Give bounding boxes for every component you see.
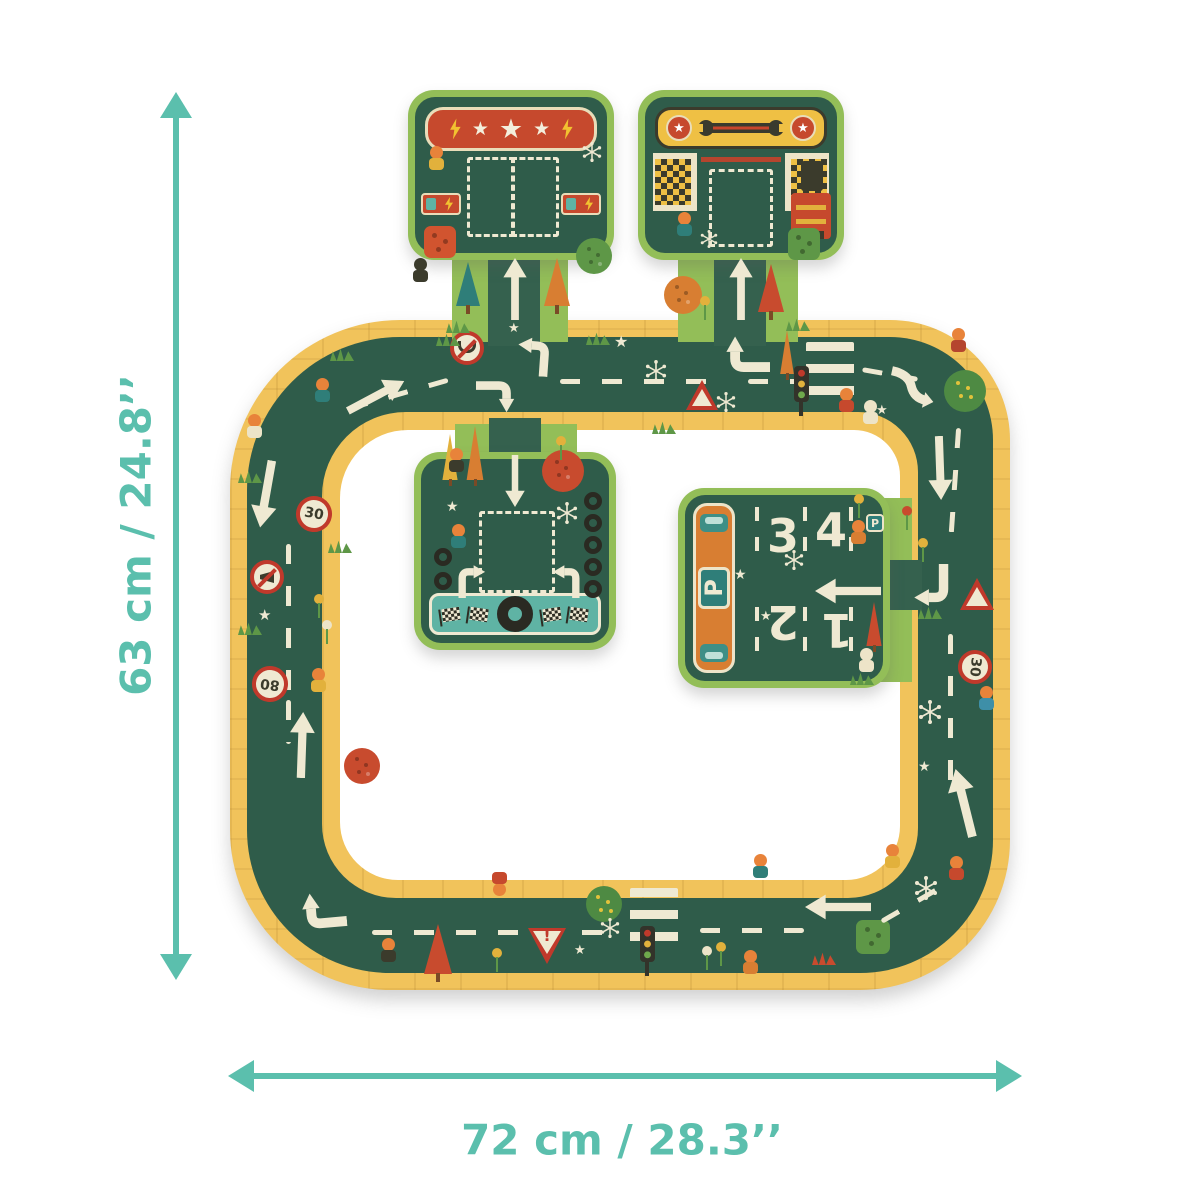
star-icon-label: ★ [258, 606, 271, 624]
speed-30-sign-label: 30 [303, 505, 325, 522]
pit-banner [429, 593, 601, 635]
rabbit [858, 648, 874, 674]
height-dimension-line [173, 114, 179, 956]
apple-tree [856, 920, 890, 954]
road-arrow [287, 712, 317, 779]
lightning-icon [560, 118, 574, 140]
no-uturn-sign [450, 331, 484, 365]
star-icon-label: ★ [446, 499, 459, 515]
parking-slot-marking [467, 157, 515, 237]
parking-sign-small-label: P [871, 518, 879, 529]
mechanic [676, 212, 692, 238]
warning-sign: ● [686, 380, 718, 410]
turn-arrow [722, 330, 770, 378]
tire-icon [434, 548, 452, 566]
space-divider [803, 607, 807, 667]
road-arrow [815, 577, 881, 605]
pedestrian [838, 388, 854, 414]
tire-icon [584, 580, 602, 598]
checkered-flag-icon [542, 606, 562, 621]
flower [556, 436, 566, 462]
star-icon-label: ★ [734, 567, 747, 583]
bird [412, 258, 428, 284]
road-arrow [502, 455, 528, 507]
star-icon-label: ★ [876, 403, 888, 418]
width-dimension-label: 72 cm / 28.3’’ [461, 1116, 783, 1165]
fox [850, 520, 866, 546]
tire-icon [584, 536, 602, 554]
width-dimension-line [252, 1073, 998, 1079]
sparkle-icon [784, 550, 804, 570]
race-banner: ★ ★ ★ [425, 107, 597, 151]
road-arrow [728, 258, 754, 320]
star-icon: ★ [574, 944, 586, 957]
star-icon: ★ [614, 334, 628, 350]
star-medallion-icon: ★ [666, 115, 692, 141]
star-icon: ★ [258, 608, 271, 623]
star-icon: ★ [918, 760, 931, 774]
parking-slot-marking [709, 169, 773, 247]
road-arrow [925, 436, 955, 501]
lane-dashes [286, 544, 291, 694]
apple-tree [788, 228, 820, 260]
warning-sign: ● [960, 578, 994, 610]
apple-tree [424, 226, 456, 258]
sparkle-icon [556, 502, 578, 524]
warning-sign-label: ● [974, 598, 980, 605]
flower [702, 946, 712, 972]
apple-tree [576, 238, 612, 274]
car-icon [700, 514, 728, 532]
figure [752, 854, 768, 880]
arrow-down-icon [160, 954, 192, 980]
turn-arrow [548, 562, 584, 598]
space-number: 1 [821, 607, 853, 653]
star-icon-label: ★ [508, 321, 520, 336]
sparkle-icon [600, 918, 620, 938]
sparkle-icon [700, 230, 718, 248]
pine-tree [424, 924, 452, 982]
pennant-tree [464, 426, 486, 486]
tire-icon [434, 572, 452, 590]
turn-arrow [511, 333, 556, 378]
turn-arrow [476, 376, 518, 418]
star-icon: ★ [472, 120, 489, 139]
product-image: 63 cm / 24.8’’ 72 cm / 28.3’’ ★ ★ ★ [0, 0, 1200, 1200]
round-tree [664, 276, 702, 314]
figure [246, 414, 262, 440]
bush [944, 370, 986, 412]
figure [380, 938, 396, 964]
space-divider [755, 507, 759, 567]
star-icon-label: ★ [760, 609, 772, 624]
parking-slot-marking [479, 511, 555, 593]
figure [428, 146, 444, 172]
arrow-left-icon [228, 1060, 254, 1092]
dog [742, 950, 758, 976]
star-icon-label: ★ [918, 759, 931, 775]
parking-sign: P [698, 567, 730, 609]
star-icon: ★ [446, 500, 459, 514]
checkered-flag-icon [569, 606, 589, 621]
bush [586, 886, 622, 922]
star-icon: ★ [499, 116, 523, 143]
arrow-right-icon [996, 1060, 1022, 1092]
star-icon-label: ★ [574, 943, 586, 958]
flower [716, 942, 726, 968]
sparkle-icon [645, 360, 667, 382]
star-icon: ★ [734, 568, 747, 582]
tire-icon [584, 558, 602, 576]
figure [310, 668, 326, 694]
speed-80-sign-label: 80 [259, 676, 280, 692]
star-icon-label: ★ [614, 332, 628, 351]
yield-sign-label: ! [543, 928, 550, 944]
road-arrow [502, 258, 528, 320]
charging-station-icon [561, 193, 601, 215]
checkered-flag-icon [469, 606, 489, 621]
flower [492, 948, 502, 974]
no-horn-sign [250, 560, 284, 594]
lightning-icon [448, 118, 462, 140]
height-dimension-label: 63 cm / 24.8’’ [112, 374, 161, 696]
sparkle-icon [582, 142, 602, 162]
checkered-flag-icon [441, 606, 461, 621]
flower [854, 494, 864, 520]
tire-icon [497, 596, 533, 632]
sparkle-icon [914, 876, 938, 900]
star-icon: ★ [876, 404, 888, 417]
sparkle-icon [716, 392, 736, 412]
turn-arrow [296, 884, 348, 936]
lane-dashes [748, 379, 800, 384]
star-icon: ★ [533, 120, 550, 139]
turn-arrow [908, 564, 954, 610]
scooter-rider [450, 524, 466, 550]
figure [492, 870, 508, 896]
lane-dashes [700, 928, 804, 933]
tire-icon [584, 514, 602, 532]
charging-station-icon [421, 193, 461, 215]
flower [918, 538, 928, 564]
parking-letter: P [700, 579, 728, 597]
figure [948, 856, 964, 882]
road-arrow [805, 893, 871, 921]
traffic-light-icon [640, 926, 655, 962]
car-icon [700, 644, 728, 662]
turn-arrow [454, 562, 490, 598]
parking-sign-small: P [866, 514, 884, 532]
parking-slot-marking [511, 157, 559, 237]
space-number: 4 [815, 507, 847, 553]
figure [978, 686, 994, 712]
vending-machine-icon [801, 161, 823, 191]
star-medallion-icon: ★ [790, 115, 816, 141]
speed-30-sign-label: 30 [967, 657, 983, 678]
traffic-light-icon [794, 366, 809, 402]
lane-dashes [372, 930, 608, 935]
figure [884, 844, 900, 870]
flower [322, 620, 332, 646]
garage-banner: ★ ★ [655, 107, 827, 149]
pine-tree [544, 258, 570, 314]
space-divider [755, 607, 759, 667]
star-icon: ★ [760, 610, 772, 623]
wrench-icon [697, 117, 785, 139]
flower [902, 506, 912, 532]
arrow-up-icon [160, 92, 192, 118]
pennant-tree [864, 602, 884, 652]
biker [448, 448, 464, 474]
star-icon: ★ [508, 322, 520, 335]
round-tree [344, 748, 380, 784]
tire-icon [584, 492, 602, 510]
warning-sign-label: ● [699, 398, 705, 405]
pine-tree [758, 264, 784, 320]
space-number: 2 [767, 599, 799, 645]
yield-sign: ! [528, 928, 566, 964]
flower [700, 296, 710, 322]
figure [314, 378, 330, 404]
parking-panel: P [693, 503, 735, 673]
sparkle-icon [918, 700, 942, 724]
pine-tree [456, 262, 480, 314]
flower [314, 594, 324, 620]
figure [950, 328, 966, 354]
